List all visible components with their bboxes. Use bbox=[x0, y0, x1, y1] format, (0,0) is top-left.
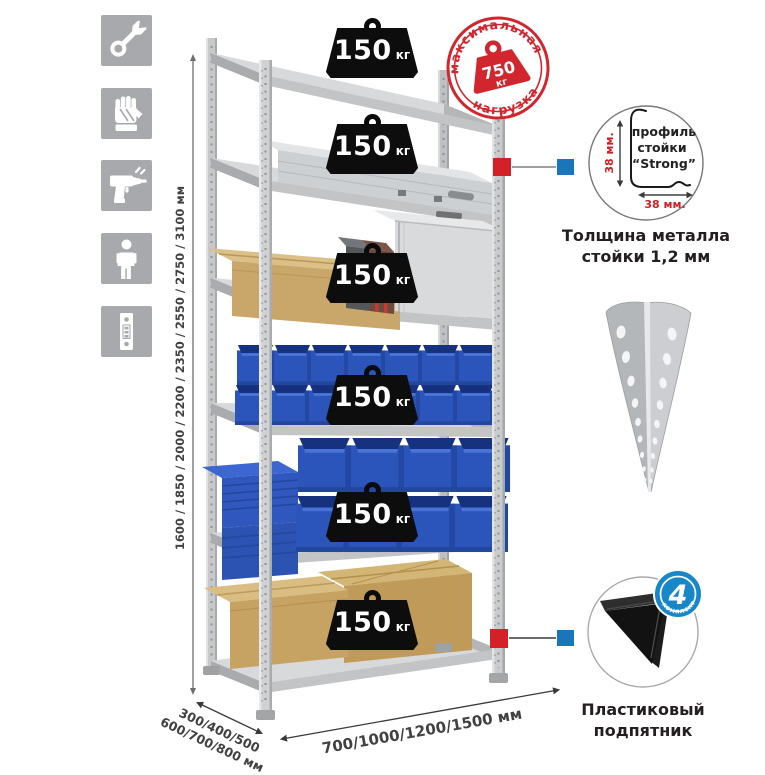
shelf-load-badge-3: 150 кг bbox=[325, 243, 419, 309]
shelf-load-unit: кг bbox=[396, 379, 410, 425]
shelf-load-unit: кг bbox=[396, 128, 410, 174]
gloves-icon bbox=[101, 88, 152, 139]
profile-detail-circle: 38 мм. 38 мм. профиль стойки “Strong” bbox=[589, 106, 703, 220]
person-icon bbox=[101, 233, 152, 284]
front-left-post bbox=[259, 60, 272, 712]
drill-icon bbox=[101, 160, 152, 211]
profile-caption-line2: стойки 1,2 мм bbox=[553, 247, 739, 268]
shelf-load-badge-2: 150 кг bbox=[325, 114, 419, 180]
profile-callout-connector bbox=[493, 158, 574, 176]
shelf-load-value: 150 bbox=[334, 600, 392, 646]
wrench-icon bbox=[101, 15, 152, 66]
shelf-load-unit: кг bbox=[396, 32, 410, 78]
shelf-load-badge-6: 150 кг bbox=[325, 590, 419, 656]
blue-marker-top bbox=[557, 159, 574, 175]
shelf-load-unit: кг bbox=[396, 604, 410, 650]
weight-body-icon: 150 кг bbox=[325, 375, 419, 425]
weight-body-icon: 150 кг bbox=[325, 253, 419, 303]
profile-caption: Толщина металла стойки 1,2 мм bbox=[553, 226, 739, 268]
profile-label-line1: профиль bbox=[632, 124, 696, 139]
icon-tile-wrench bbox=[101, 15, 152, 66]
shelf-load-unit: кг bbox=[396, 496, 410, 542]
height-dimension-line bbox=[190, 54, 196, 695]
page: { "assembly_icons": { "items": [ {"name"… bbox=[0, 0, 765, 765]
profile-height-dim: 38 мм. bbox=[603, 132, 616, 173]
front-right-post bbox=[492, 112, 505, 675]
shelf-load-value: 150 bbox=[334, 253, 392, 299]
shelf-load-value: 150 bbox=[334, 375, 392, 421]
weight-body-icon: 150 кг bbox=[325, 600, 419, 650]
shelf-load-badge-1: 150 кг bbox=[325, 18, 419, 84]
back-left-post bbox=[206, 38, 217, 668]
icon-tile-gloves bbox=[101, 88, 152, 139]
shelf-load-badge-4: 150 кг bbox=[325, 365, 419, 431]
icon-tile-person bbox=[101, 233, 152, 284]
red-marker-top bbox=[493, 158, 511, 176]
shelf-load-value: 150 bbox=[334, 124, 392, 170]
foot-caption: Пластиковый подпятник bbox=[568, 700, 718, 742]
post-profile-icon bbox=[101, 306, 152, 357]
height-dimension-label: 1600 / 1850 / 2000 / 2200 / 2350 / 2550 … bbox=[173, 186, 187, 550]
foot-callout-connector bbox=[490, 629, 574, 648]
profile-label-line2: стойки bbox=[637, 140, 686, 155]
weight-body-icon: 150 кг bbox=[325, 28, 419, 78]
profile-width-dim: 38 мм. bbox=[644, 198, 685, 211]
shelf-load-value: 150 bbox=[334, 28, 392, 74]
shelf-load-value: 150 bbox=[334, 492, 392, 538]
icon-tile-post-profile bbox=[101, 306, 152, 357]
shelf-load-unit: кг bbox=[396, 257, 410, 303]
weight-body-icon: 150 кг bbox=[325, 492, 419, 542]
blue-marker-bottom bbox=[557, 630, 574, 646]
profile-caption-line1: Толщина металла bbox=[553, 226, 739, 247]
shelf-load-badge-5: 150 кг bbox=[325, 482, 419, 548]
metal-angle-post-image bbox=[606, 302, 691, 492]
red-marker-bottom bbox=[490, 629, 508, 648]
weight-body-icon: 150 кг bbox=[325, 124, 419, 174]
icon-tile-drill bbox=[101, 160, 152, 211]
profile-label-line3: “Strong” bbox=[632, 156, 696, 171]
